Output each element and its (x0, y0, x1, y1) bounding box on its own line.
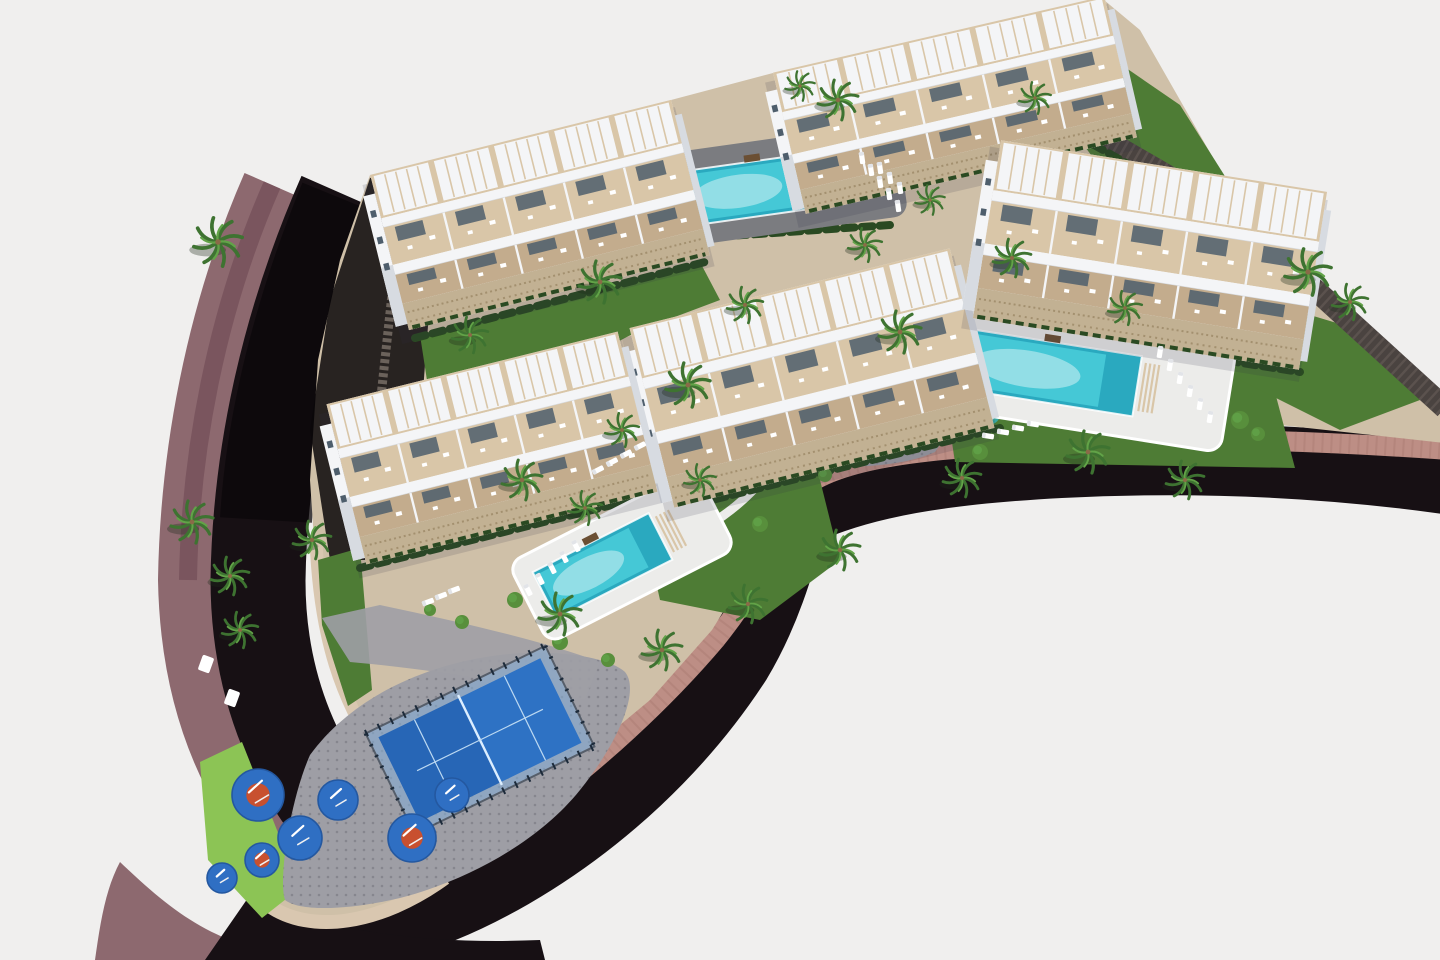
shrub (1251, 427, 1265, 441)
playground-pad (232, 769, 284, 821)
playground-pad (318, 780, 358, 820)
render-canvas (0, 0, 1440, 960)
playground-pad (388, 814, 436, 862)
shrub (455, 615, 469, 629)
playground-pad (207, 863, 237, 893)
shrub (972, 444, 988, 460)
playground-pad (435, 778, 469, 812)
shrub (601, 653, 615, 667)
shrub (424, 604, 436, 616)
shrub (1231, 411, 1249, 429)
aerial-render (0, 0, 1440, 960)
playground-pad (245, 843, 279, 877)
shrub (507, 592, 523, 608)
playground-pad (278, 816, 322, 860)
shrub (752, 516, 768, 532)
